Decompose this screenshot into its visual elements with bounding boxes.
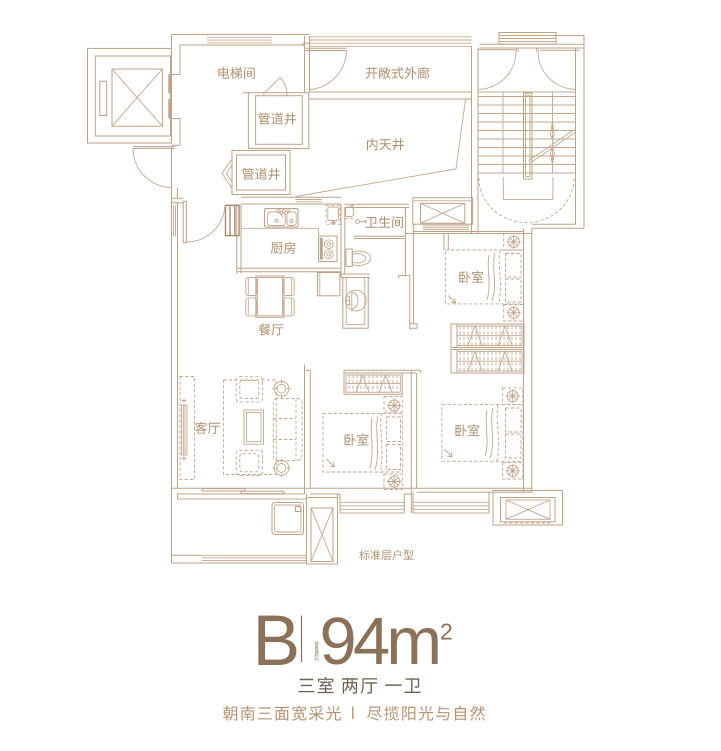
svg-text:B: B: [253, 601, 301, 681]
svg-text:94m: 94m: [320, 605, 439, 679]
svg-text:2: 2: [440, 619, 453, 645]
